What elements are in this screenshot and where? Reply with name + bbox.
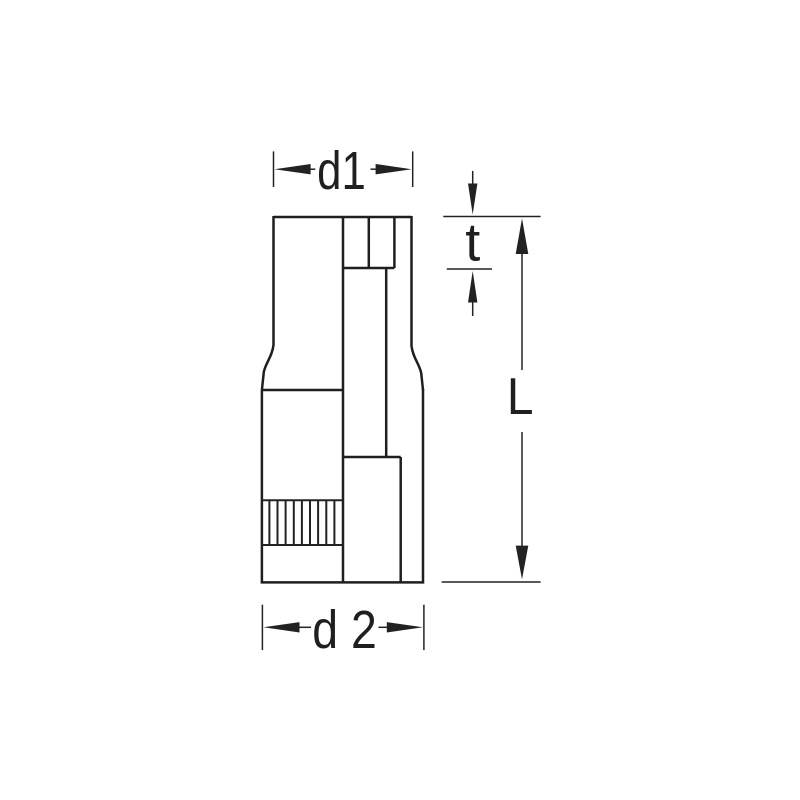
svg-text:L: L: [507, 367, 534, 425]
svg-text:d1: d1: [317, 142, 366, 201]
svg-text:d 2: d 2: [312, 598, 377, 659]
svg-text:t: t: [465, 213, 480, 273]
